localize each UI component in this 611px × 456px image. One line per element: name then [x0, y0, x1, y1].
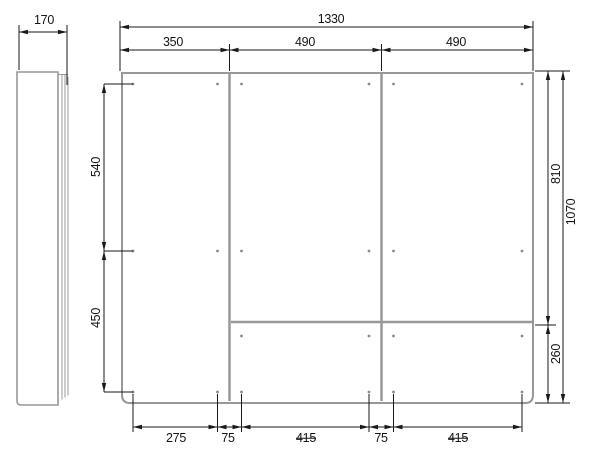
overall-width-dim-label: 1330 — [318, 13, 345, 26]
column-width-1-label: 350 — [163, 36, 183, 49]
bottom-spacing-4-label: 75 — [374, 432, 387, 445]
bottom-spacing-3-label: 415 — [296, 432, 316, 445]
panel-outline — [122, 73, 533, 403]
right-overall-height-label: 1070 — [565, 199, 578, 226]
side-view — [17, 72, 68, 405]
side-body-outline — [17, 72, 58, 405]
bottom-spacing-5-label: 415 — [448, 432, 468, 445]
front-view — [122, 73, 533, 403]
column-width-2-label: 490 — [295, 36, 315, 49]
column-width-3-label: 490 — [446, 36, 466, 49]
left-lower-height-label: 450 — [90, 308, 103, 328]
drawing-canvas — [0, 0, 611, 456]
bottom-spacing-1-label: 275 — [166, 432, 186, 445]
bottom-spacing-2-label: 75 — [221, 432, 234, 445]
left-upper-height-label: 540 — [90, 157, 103, 177]
right-lower-height-label: 260 — [550, 344, 563, 364]
side-depth-dim-label: 170 — [34, 14, 54, 27]
technical-drawing-page: 170 1330 350 490 490 540 450 810 1070 26… — [0, 0, 611, 456]
right-upper-height-label: 810 — [550, 164, 563, 184]
